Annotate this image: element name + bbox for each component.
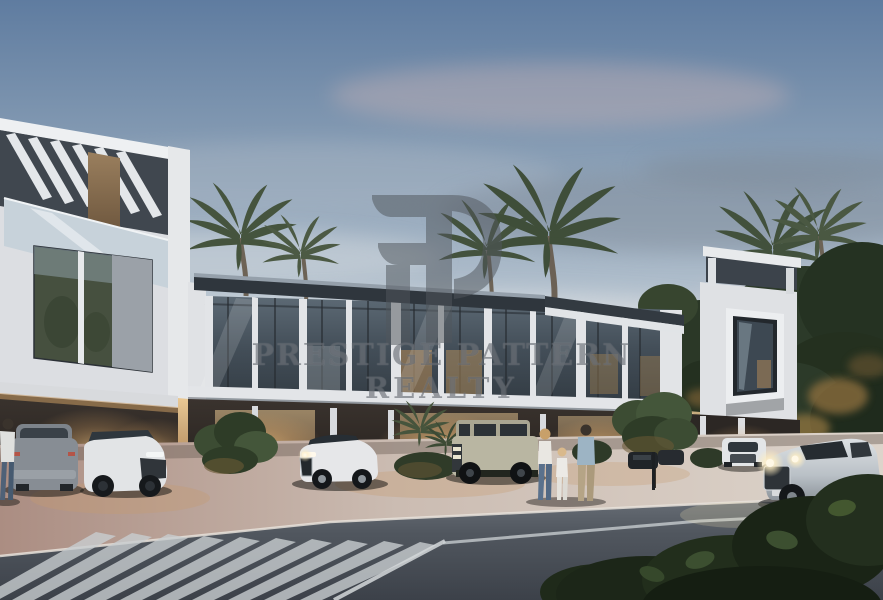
tree-uplight bbox=[808, 378, 868, 414]
street-pole bbox=[652, 452, 655, 490]
scene-canvas bbox=[0, 0, 883, 600]
villa-window bbox=[34, 246, 152, 372]
projecting-window-box bbox=[726, 308, 784, 416]
real-estate-render: PRESTIGE PATTERN REALTY bbox=[0, 0, 883, 600]
car-suv-rear-gray bbox=[4, 424, 84, 497]
